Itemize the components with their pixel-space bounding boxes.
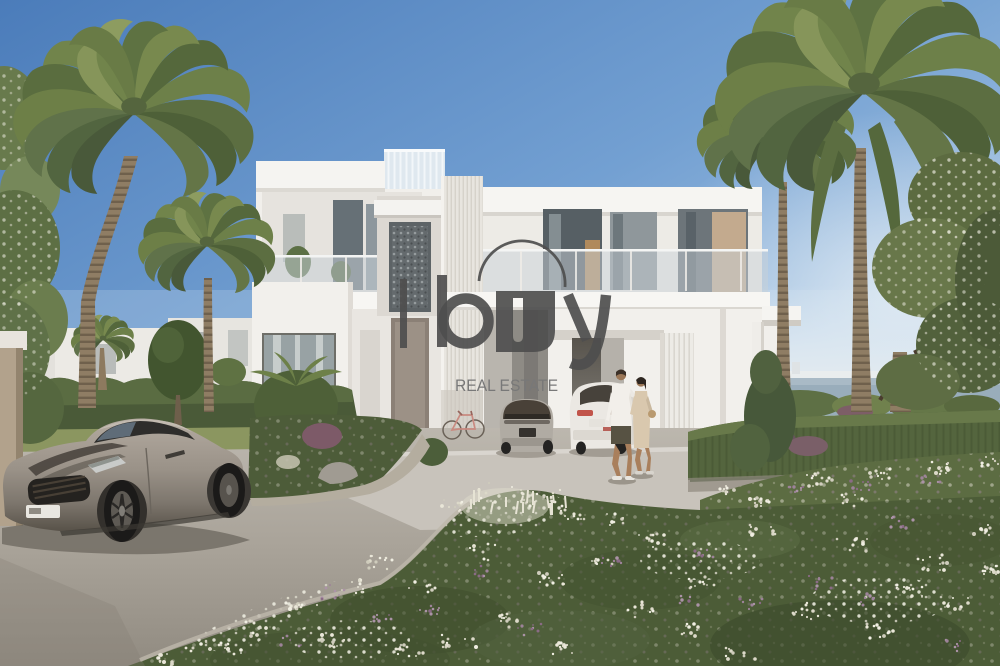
svg-text:REAL ESTATE: REAL ESTATE	[455, 376, 558, 395]
